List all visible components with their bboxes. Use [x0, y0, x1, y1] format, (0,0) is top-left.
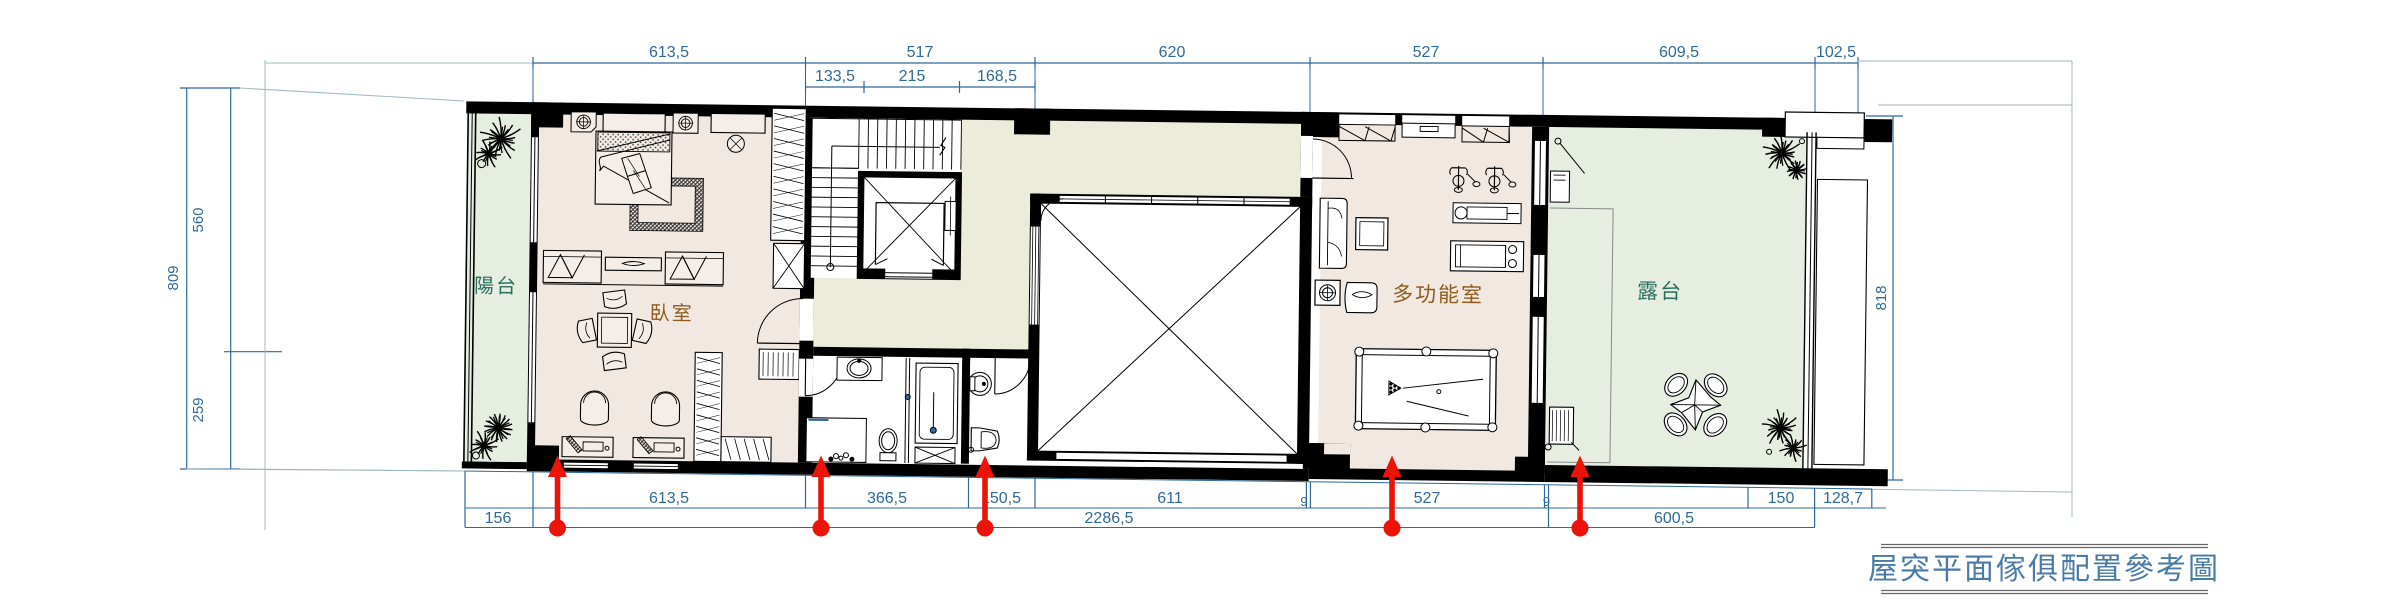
svg-text:560: 560 — [190, 207, 207, 232]
svg-text:露台: 露台 — [1637, 280, 1683, 304]
svg-text:613,5: 613,5 — [649, 490, 689, 507]
svg-text:168,5: 168,5 — [977, 68, 1017, 85]
svg-text:屋突平面傢俱配置參考圖: 屋突平面傢俱配置參考圖 — [1868, 553, 2220, 586]
svg-text:600,5: 600,5 — [1654, 510, 1694, 527]
svg-text:9: 9 — [1543, 494, 1550, 509]
svg-text:609,5: 609,5 — [1659, 44, 1699, 61]
svg-text:527: 527 — [1414, 490, 1441, 507]
svg-text:366,5: 366,5 — [867, 490, 907, 507]
svg-text:9: 9 — [1300, 494, 1307, 509]
svg-text:259: 259 — [190, 397, 207, 422]
svg-text:133,5: 133,5 — [815, 68, 855, 85]
svg-text:102,5: 102,5 — [1816, 44, 1856, 61]
svg-text:陽台: 陽台 — [474, 275, 518, 299]
svg-text:613,5: 613,5 — [649, 44, 689, 61]
svg-text:156: 156 — [485, 510, 512, 527]
svg-text:150: 150 — [1768, 490, 1795, 507]
svg-text:517: 517 — [907, 44, 934, 61]
svg-text:620: 620 — [1159, 44, 1186, 61]
svg-text:128,7: 128,7 — [1823, 490, 1863, 507]
svg-text:臥室: 臥室 — [650, 302, 694, 326]
svg-text:多功能室: 多功能室 — [1392, 283, 1484, 307]
svg-text:611: 611 — [1157, 490, 1183, 507]
svg-text:527: 527 — [1413, 44, 1440, 61]
svg-text:809: 809 — [165, 265, 182, 290]
svg-text:215: 215 — [899, 68, 926, 85]
svg-text:2286,5: 2286,5 — [1085, 510, 1134, 527]
svg-text:818: 818 — [1873, 285, 1890, 310]
